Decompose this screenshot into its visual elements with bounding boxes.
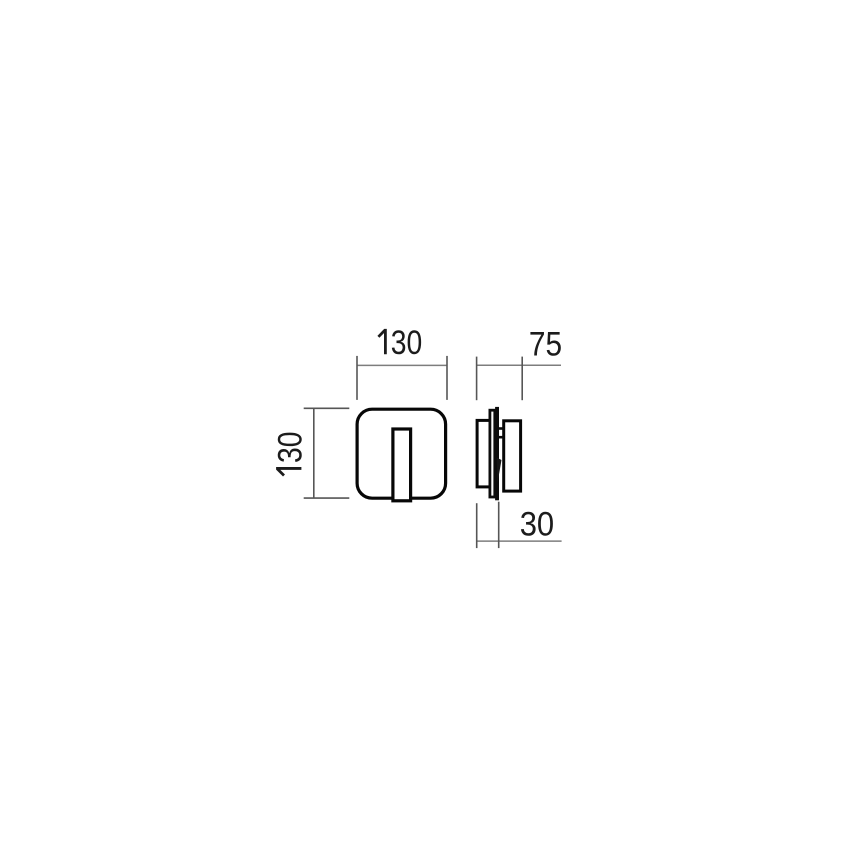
svg-text:30: 30 (391, 324, 423, 362)
svg-text:75: 75 (529, 326, 562, 364)
svg-text:30: 30 (271, 432, 309, 464)
svg-text:30: 30 (520, 505, 555, 543)
